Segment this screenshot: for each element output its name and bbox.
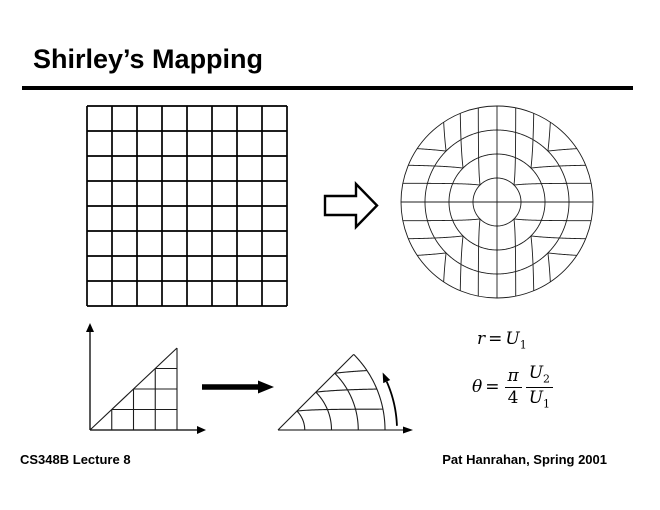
var-theta: θ xyxy=(472,377,482,397)
sector-axis-arrowhead xyxy=(403,427,413,434)
concentric-disk-grid-figure xyxy=(392,97,604,309)
fraction-pi-over-4: π4 xyxy=(505,367,522,409)
footer-course-label: CS348B Lecture 8 xyxy=(20,452,131,467)
sector-arc xyxy=(335,373,359,430)
angle-arrow-curve xyxy=(387,382,397,426)
numerator-u2: U2 xyxy=(526,364,553,388)
footer-author-label: Pat Hanrahan, Spring 2001 xyxy=(442,452,607,467)
denominator-u1: U1 xyxy=(526,388,553,411)
equals-sign: = xyxy=(482,377,502,397)
x-axis-arrowhead xyxy=(197,426,206,434)
equals-sign: = xyxy=(485,329,505,349)
y-axis-arrowhead xyxy=(86,323,94,332)
numerator-pi: π xyxy=(505,367,522,389)
sector-arc xyxy=(354,354,385,430)
slide: Shirley’s Mapping r=U1 θ=π4U2U1 CS348B L… xyxy=(0,0,660,510)
sector-curve xyxy=(297,409,383,411)
uniform-square-grid-figure xyxy=(85,104,291,310)
title-underline xyxy=(22,86,633,90)
block-arrow-right xyxy=(325,184,377,227)
sector-arc xyxy=(297,411,305,430)
equations-block: r=U1 θ=π4U2U1 xyxy=(472,329,555,411)
fraction-u2-over-u1: U2U1 xyxy=(526,364,553,411)
denominator-4: 4 xyxy=(505,388,522,409)
sector-grid-figure xyxy=(268,344,436,440)
angle-arrowhead xyxy=(383,372,391,383)
sector-curve xyxy=(335,371,367,374)
triangle-grid-axes-figure xyxy=(75,318,217,440)
equation-theta: θ=π4U2U1 xyxy=(472,364,555,411)
block-arrow-right-icon xyxy=(321,180,381,232)
var-r: r xyxy=(477,329,485,349)
page-title: Shirley’s Mapping xyxy=(33,44,263,75)
sector-arc xyxy=(316,392,332,430)
equation-radius: r=U1 xyxy=(472,329,555,351)
subscript-1: 1 xyxy=(520,338,527,351)
sector-curve xyxy=(316,389,377,392)
var-u: U xyxy=(505,329,519,349)
